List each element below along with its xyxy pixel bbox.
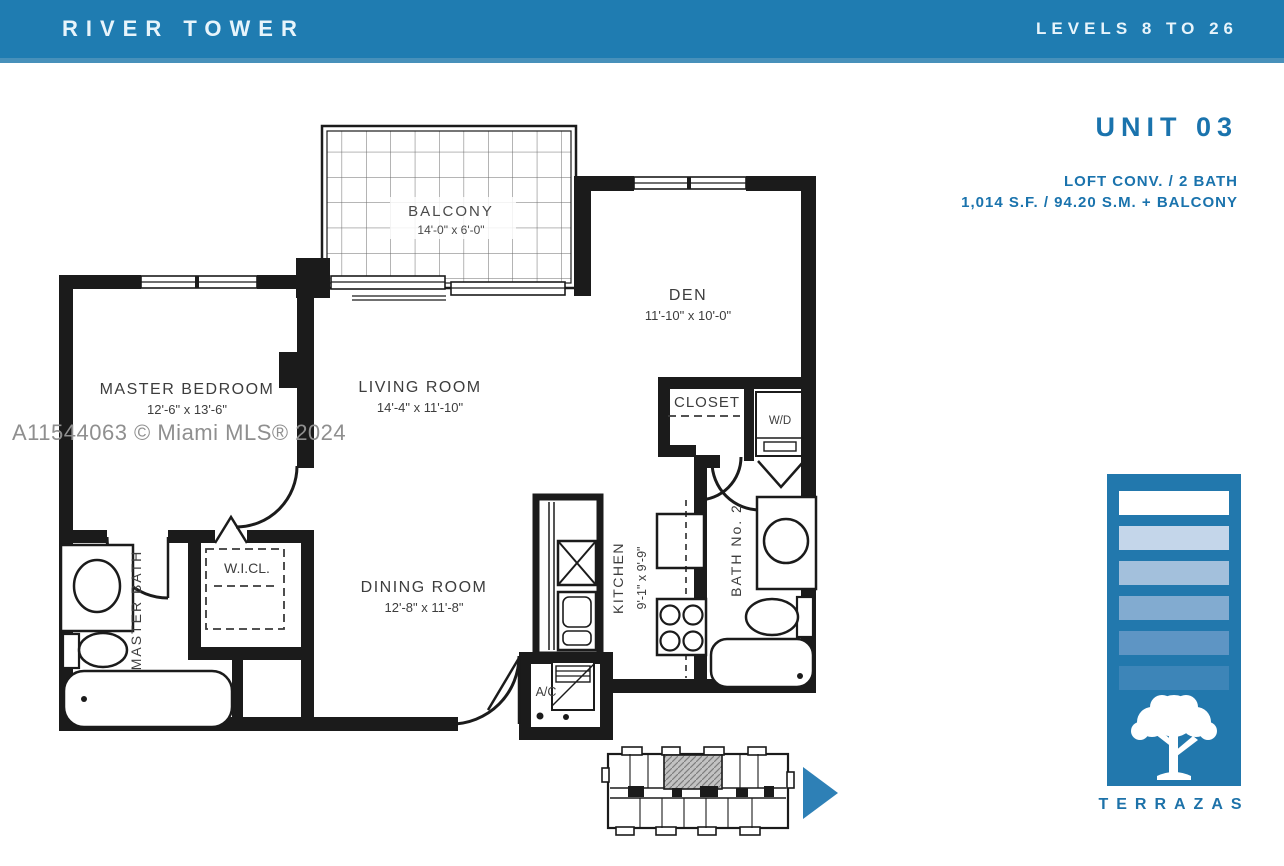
key-plan-unit-highlight xyxy=(664,755,722,789)
room-label-kitchen: KITCHEN xyxy=(610,542,626,614)
room-label-master-bath: MASTER BATH xyxy=(128,550,144,671)
logo-bar xyxy=(1119,631,1229,655)
tree-icon xyxy=(1119,686,1229,781)
bathtub-icon xyxy=(64,671,232,727)
logo-bar xyxy=(1119,526,1229,550)
sink-icon xyxy=(764,519,808,563)
logo-bar xyxy=(1119,596,1229,620)
bath-2-fixtures xyxy=(711,497,816,687)
room-dims-living-room: 14'-4" x 11'-10" xyxy=(377,400,464,415)
room-dims-kitchen: 9'-1" x 9'-9" xyxy=(635,547,649,610)
logo-bar xyxy=(1119,491,1229,515)
room-label-den: DEN xyxy=(669,287,707,304)
room-label-closet: CLOSET xyxy=(674,394,740,411)
toilet-tank-icon xyxy=(797,597,813,637)
room-label-washer-dryer: W/D xyxy=(769,415,791,427)
toilet-icon xyxy=(746,599,798,635)
room-label-living-room: LIVING ROOM xyxy=(358,379,481,396)
room-dims-den: 11'-10" x 10'-0" xyxy=(645,308,732,323)
room-label-bath-2: BATH No. 2 xyxy=(728,503,744,597)
logo-bar xyxy=(1119,561,1229,585)
room-label-ac: A/C xyxy=(536,685,557,699)
room-label-dining-room: DINING ROOM xyxy=(361,579,488,596)
room-dims-master-bedroom: 12'-6" x 13'-6" xyxy=(147,402,227,417)
page: RIVER TOWER LEVELS 8 TO 26 UNIT 03 LOFT … xyxy=(0,0,1284,866)
building-logo xyxy=(1107,474,1241,786)
key-plan xyxy=(602,747,794,835)
toilet-tank-icon xyxy=(63,634,79,668)
drain-icon xyxy=(81,696,87,702)
counter-sink-icon xyxy=(657,514,704,568)
room-label-master-bedroom: MASTER BEDROOM xyxy=(100,381,275,398)
toilet-icon xyxy=(79,633,127,667)
room-dims-dining-room: 12'-8" x 11'-8" xyxy=(385,600,464,615)
room-label-walk-in-closet: W.I.CL. xyxy=(224,560,270,576)
key-plan-arrow-icon xyxy=(803,767,838,819)
bathtub-icon xyxy=(711,639,813,687)
mls-watermark: A11544063 © Miami MLS® 2024 xyxy=(12,420,346,446)
room-label-balcony: BALCONY xyxy=(408,203,494,220)
sink-icon xyxy=(74,560,120,612)
room-dims-balcony: 14'-0" x 6'-0" xyxy=(417,223,484,237)
drain-icon xyxy=(797,673,803,679)
brand-name: TERRAZAS xyxy=(1094,796,1254,814)
